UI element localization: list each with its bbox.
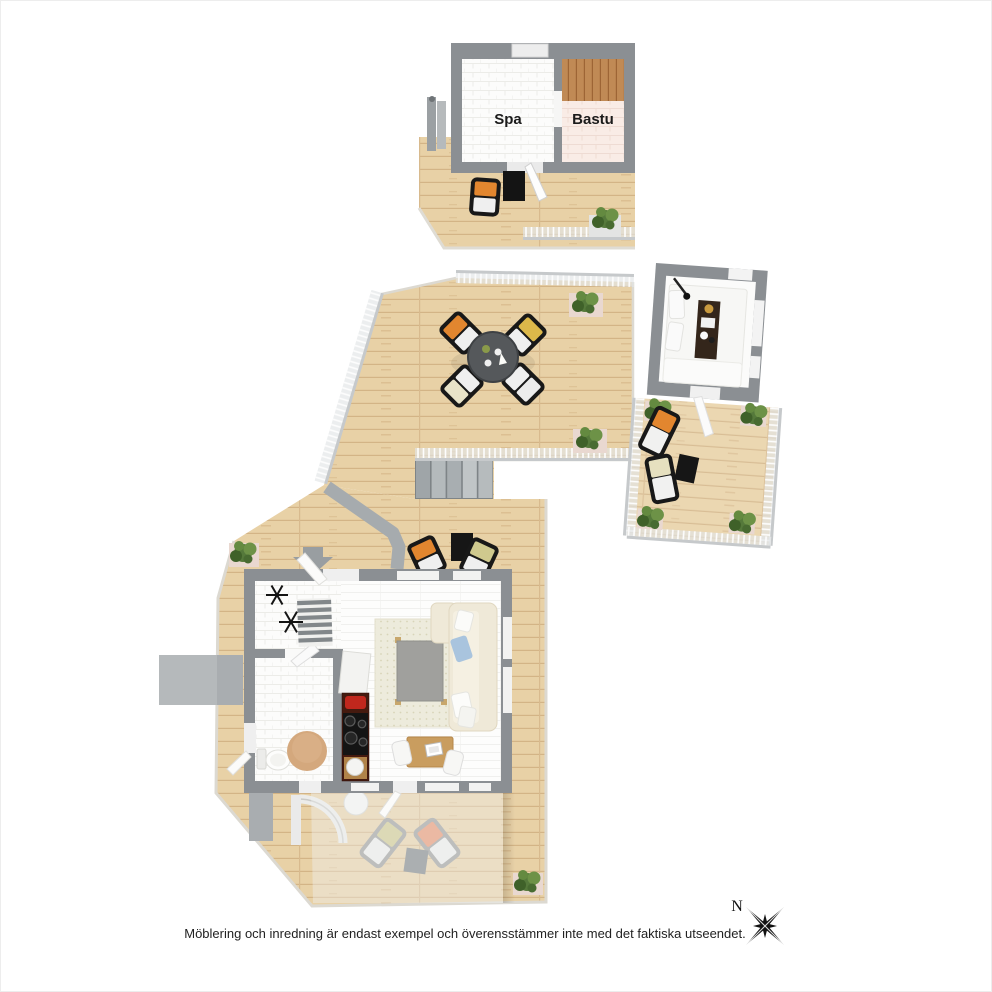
floorplan-page: Spa Bastu: [0, 0, 992, 992]
kitchen-kettle: [345, 696, 366, 709]
table-item-cup2: [485, 360, 492, 367]
terrace-stairs: [415, 459, 493, 499]
toilet-seat: [270, 754, 286, 767]
stove-burner-2: [358, 720, 366, 728]
sauna-house-unit: Spa Bastu: [419, 43, 635, 248]
stove-burner-1: [345, 716, 355, 726]
living-terrace-door-opening: [393, 781, 417, 793]
guest-window-right-2: [749, 356, 761, 379]
sauna-side-table: [503, 171, 525, 201]
kitchen-fridge: [339, 651, 371, 696]
side-door-opening: [244, 723, 256, 753]
desk-laptop: [425, 742, 443, 757]
sauna-roof-hatch: [512, 44, 548, 57]
spa-bastu-door-opening: [554, 91, 562, 127]
entry-door-opening: [323, 569, 359, 581]
side-ramp-outer: [159, 655, 219, 705]
sauna-deck-armchair: [469, 177, 502, 217]
disclaimer-caption: Möblering och inredning är endast exempe…: [184, 926, 745, 941]
cabin-window-bottom-2: [425, 783, 459, 791]
compass-north-label: N: [731, 898, 743, 915]
cabin-window-bottom-3: [469, 783, 491, 791]
bastu-room-label: Bastu: [572, 111, 614, 128]
glass-pergola-tint: [311, 793, 503, 903]
deck-shower-panel: [291, 795, 301, 845]
bathroom-pouf-top: [292, 733, 322, 763]
spa-room-label: Spa: [494, 111, 522, 128]
stove-burner-3: [345, 732, 357, 744]
lower-path: [249, 789, 273, 841]
cabin-window-right-2: [503, 667, 512, 713]
cabin-window-top-2: [453, 571, 481, 580]
cabin-window-top-1: [397, 571, 439, 580]
table-item-cup: [495, 349, 502, 356]
cabin-window-right-1: [503, 617, 512, 659]
toilet-tank: [257, 749, 266, 769]
dining-table: [468, 332, 518, 382]
guest-pillow-1: [669, 290, 685, 319]
bastu-wood-panel: [562, 59, 624, 101]
kitchen-sink: [347, 759, 364, 776]
stove-burner-4: [359, 738, 367, 746]
guest-bed-sheet: [663, 358, 742, 387]
guest-window-top: [728, 268, 753, 281]
sofa-pillow-white-3: [457, 706, 476, 728]
side-ramp-inner: [217, 655, 243, 705]
table-item-green: [482, 345, 490, 353]
living-ottoman: [397, 641, 443, 701]
cabin-window-bottom-1: [351, 783, 379, 791]
bath-terrace-door-opening: [299, 781, 321, 793]
runner-item-2: [701, 317, 716, 328]
floorplan-canvas: Spa Bastu: [1, 1, 991, 991]
